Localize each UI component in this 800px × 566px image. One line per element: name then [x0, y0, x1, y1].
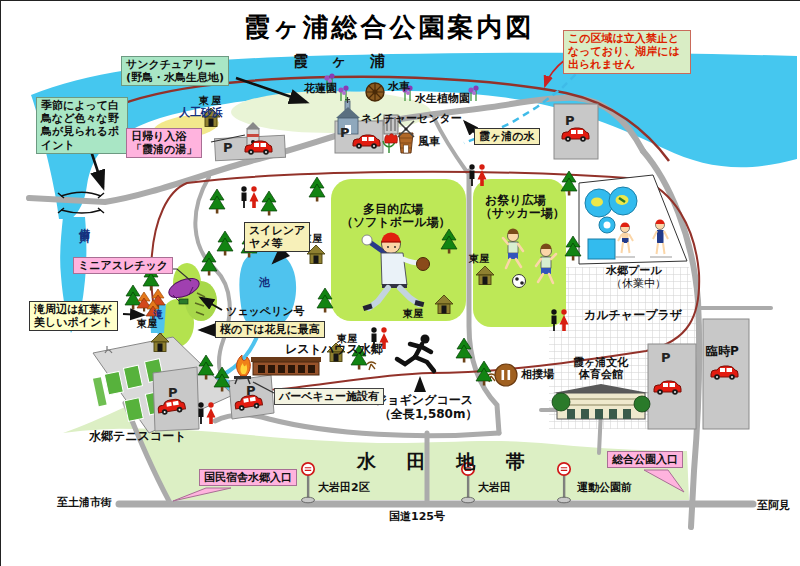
parking-label: P: [168, 385, 178, 400]
beach-label: 人工砂浜: [179, 107, 223, 120]
sogo-entrance-note: 総合公園入口: [607, 451, 683, 468]
pool-closed-label: （休業中）: [611, 278, 666, 291]
lake-water-note: 霞ヶ浦の水: [474, 128, 540, 145]
pool-label: 水郷プール: [606, 265, 662, 278]
resthouse-label: レストハウス水郷: [285, 343, 383, 357]
autumn-note: 滝周辺は紅葉が美しいポイント: [29, 301, 118, 331]
waterfall-label: 滝: [153, 309, 163, 321]
day-bath-note: 日帰り入浴「霞浦の湯」: [126, 128, 202, 158]
park-guide-map: 霞ヶ浦総合公園案内図 霞 ヶ 浦 この区域は立入禁止となっており、湖岸には出られ…: [0, 0, 800, 566]
parking-label: P: [565, 113, 575, 128]
cherry-grove: [160, 263, 217, 347]
resthouse-building-icon: [251, 357, 321, 375]
no-entry-note: この区域は立入禁止となっており、湖岸には出られません: [563, 30, 691, 74]
runner-icon: [397, 335, 434, 372]
festival-sub-label: （サッカー場）: [480, 207, 565, 221]
azumaya-label: 東屋: [469, 253, 489, 265]
cherry-note: 桜の下は花見に最高: [215, 321, 325, 338]
jogging-length-label: （全長1,580m）: [379, 408, 477, 422]
river-label: 備前川: [77, 219, 90, 225]
paddy-label: 水 田 地 帯: [357, 451, 537, 473]
bus-stop-oiwada2-label: 大岩田2区: [318, 482, 370, 495]
sumo-ring-icon: [495, 364, 517, 386]
parking-label: P: [246, 383, 256, 398]
parking-label: P: [340, 125, 350, 140]
bbq-note: バーベキュー施設有: [274, 388, 384, 405]
jogging-label: ジョギングコース: [375, 394, 473, 408]
mini-athletic-note: ミニアスレチック: [73, 257, 173, 274]
kokumin-entrance-note: 国民宿舎水郷入口: [199, 469, 297, 486]
sumo-label: 相撲場: [521, 369, 554, 382]
bus-stop-oiwada-label: 大岩田: [478, 482, 511, 495]
tulip-icon: [383, 134, 397, 153]
zeppelin-label: ツェッペリン号: [226, 306, 305, 319]
lotus-garden-label: 花蓮園: [304, 83, 337, 96]
waterwheel-icon: [366, 83, 384, 101]
gym-label2: 体育会館: [579, 369, 623, 382]
azumaya-label: 東屋: [199, 95, 223, 107]
lake-name-label: 霞 ヶ 浦: [293, 53, 394, 70]
to-ami-label: 至阿見: [757, 500, 790, 513]
bus-stop-undokoen-label: 運動公園前: [577, 482, 632, 495]
sanctuary-note: サンクチュアリー(野鳥・水鳥生息地): [121, 56, 229, 86]
waterwheel-label: 水車: [388, 81, 410, 94]
page-title: 霞ヶ浦総合公園案内図: [244, 13, 535, 43]
parking-label: P: [223, 140, 233, 155]
culture-plaza-label: カルチャープラザ: [584, 309, 682, 323]
aquatic-garden-label: 水生植物園: [415, 93, 470, 106]
water-lily-note: スイレンアヤメ等: [244, 222, 310, 252]
to-tsuchiura-label: 至土浦市街: [57, 497, 112, 510]
windmill-label: 風車: [418, 136, 440, 149]
tennis-label: 水郷テニスコート: [89, 430, 186, 444]
parking-label: P: [661, 350, 671, 365]
nature-center-label: ネイチャーセンター: [361, 113, 462, 126]
wild-birds-note: 季節によって白鳥など色々な野鳥が見られるポイント: [36, 97, 128, 154]
temp-parking-label: 臨時P: [706, 345, 739, 359]
insect-icon: [367, 362, 376, 370]
pond-label: 池: [259, 277, 270, 290]
multipurpose-sub-label: （ソフトボール場）: [341, 216, 450, 230]
route-125-label: 国道125号: [389, 511, 445, 524]
azumaya-label: 東屋: [403, 308, 423, 320]
